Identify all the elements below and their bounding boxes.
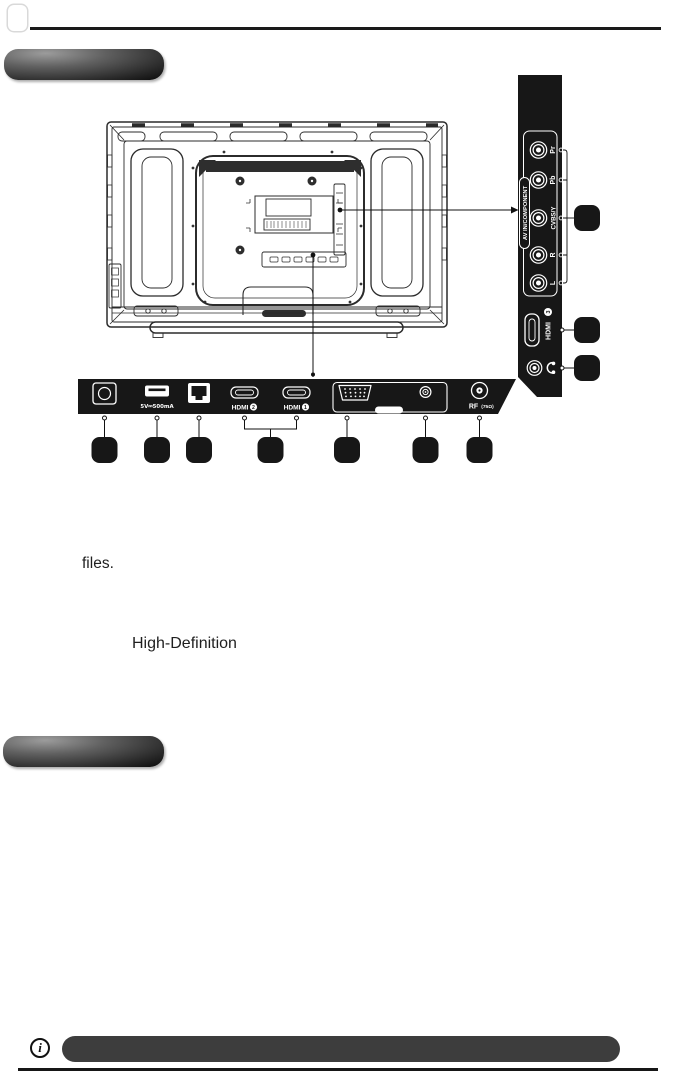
bottom-callout-boxes bbox=[92, 437, 493, 463]
callout-box-usb bbox=[144, 437, 170, 463]
callout-box-rf bbox=[467, 437, 493, 463]
callout-box-lan bbox=[186, 437, 212, 463]
side-io-panel: Pr Pb CVBS/Y R bbox=[518, 75, 600, 397]
arrowhead bbox=[511, 207, 519, 214]
callout-box-av bbox=[574, 205, 600, 231]
screw-dots bbox=[192, 151, 363, 304]
note-highlight-bar bbox=[62, 1036, 620, 1062]
left-vent-panel bbox=[131, 149, 183, 296]
right-vent-panel bbox=[371, 149, 423, 296]
lan-port bbox=[188, 383, 210, 403]
hdmi1-label: HDMI bbox=[284, 405, 301, 412]
hdmi1-number: 1 bbox=[304, 405, 307, 411]
vesa-recess bbox=[196, 156, 364, 305]
callout-box-audio bbox=[413, 437, 439, 463]
hdmi2-label: HDMI bbox=[232, 405, 249, 412]
rf-impedance-label: (75Ω) bbox=[481, 404, 494, 410]
tv-left-connector-strip bbox=[109, 264, 121, 308]
rf-label: RF bbox=[469, 404, 479, 411]
rca-jack-l-label: L bbox=[550, 280, 557, 285]
svg-text:AV IN/COMPONENT: AV IN/COMPONENT bbox=[523, 185, 529, 240]
hdmi2-number: 2 bbox=[252, 405, 255, 411]
callout-box-optical bbox=[92, 437, 118, 463]
rca-jack-pb-label: Pb bbox=[550, 176, 557, 185]
top-vent-slots bbox=[118, 132, 427, 141]
rca-jack-cvbs-y-label: CVBS/Y bbox=[550, 206, 557, 230]
tv-rear-connection-diagram: Pr Pb CVBS/Y R bbox=[0, 0, 674, 620]
body-text-fragment-high-definition: High-Definition bbox=[132, 635, 237, 653]
tv-rear-view bbox=[107, 122, 447, 338]
callout-box-hdmi3 bbox=[574, 317, 600, 343]
stand-column bbox=[243, 287, 313, 317]
usb-power-label: 5V⎓500mA bbox=[140, 404, 174, 410]
footer-rule bbox=[18, 1068, 658, 1071]
stand-bar bbox=[150, 322, 403, 338]
vga-box-tab bbox=[375, 407, 403, 414]
hdmi3-number: 3 bbox=[546, 311, 552, 314]
tv-bottom-connector-recess bbox=[262, 252, 346, 267]
bottom-io-panel: 5V⎓500mA HDMI 2 HDMI bbox=[78, 379, 516, 463]
callout-box-vga bbox=[334, 437, 360, 463]
callout-box-hdmi bbox=[258, 437, 284, 463]
tv-side-connector-strip bbox=[334, 184, 345, 255]
rca-jack-r-label: R bbox=[550, 252, 557, 257]
section-banner-2 bbox=[3, 736, 164, 767]
body-text-fragment-files: files. bbox=[82, 555, 114, 573]
hdmi-pair-bracket bbox=[245, 420, 297, 437]
av-component-label: AV IN/COMPONENT bbox=[520, 178, 530, 249]
vesa-plate bbox=[246, 196, 342, 233]
manual-page: Pr Pb CVBS/Y R bbox=[0, 0, 674, 1076]
bottom-callout-leaders bbox=[103, 416, 482, 437]
hdmi3-label: HDMI bbox=[546, 322, 553, 340]
rca-jack-pr-label: Pr bbox=[550, 146, 557, 154]
callout-box-headphone bbox=[574, 355, 600, 381]
callout-leader-lines bbox=[311, 207, 519, 378]
info-icon: i bbox=[30, 1038, 50, 1058]
